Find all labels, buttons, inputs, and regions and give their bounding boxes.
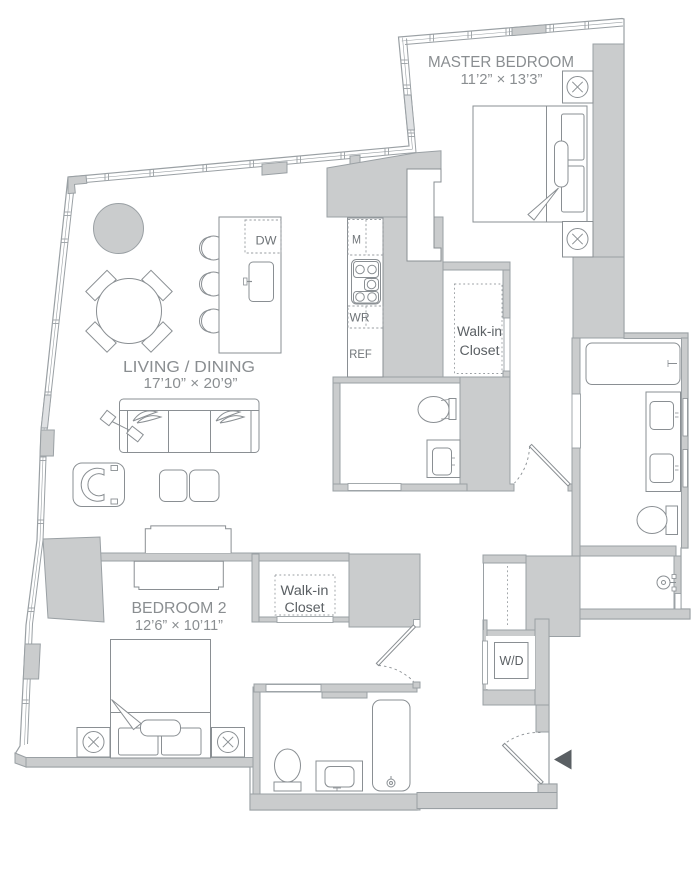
svg-text:LIVING / DINING: LIVING / DINING xyxy=(123,359,255,376)
svg-text:REF: REF xyxy=(349,347,372,361)
svg-text:Closet: Closet xyxy=(460,343,500,358)
svg-text:Walk-in: Walk-in xyxy=(281,583,329,598)
svg-text:BEDROOM 2: BEDROOM 2 xyxy=(132,600,227,617)
svg-text:MASTER BEDROOM: MASTER BEDROOM xyxy=(428,54,574,71)
svg-text:17’10” × 20’9”: 17’10” × 20’9” xyxy=(144,375,238,392)
svg-text:12’6” × 10’11”: 12’6” × 10’11” xyxy=(135,617,223,634)
svg-text:W/D: W/D xyxy=(500,653,524,668)
svg-text:11’2” × 13’3”: 11’2” × 13’3” xyxy=(461,71,543,88)
svg-text:WR: WR xyxy=(350,311,370,325)
svg-text:M: M xyxy=(352,233,361,247)
svg-text:Closet: Closet xyxy=(285,600,325,615)
svg-text:DW: DW xyxy=(256,234,278,248)
svg-text:Walk-in: Walk-in xyxy=(457,324,502,339)
